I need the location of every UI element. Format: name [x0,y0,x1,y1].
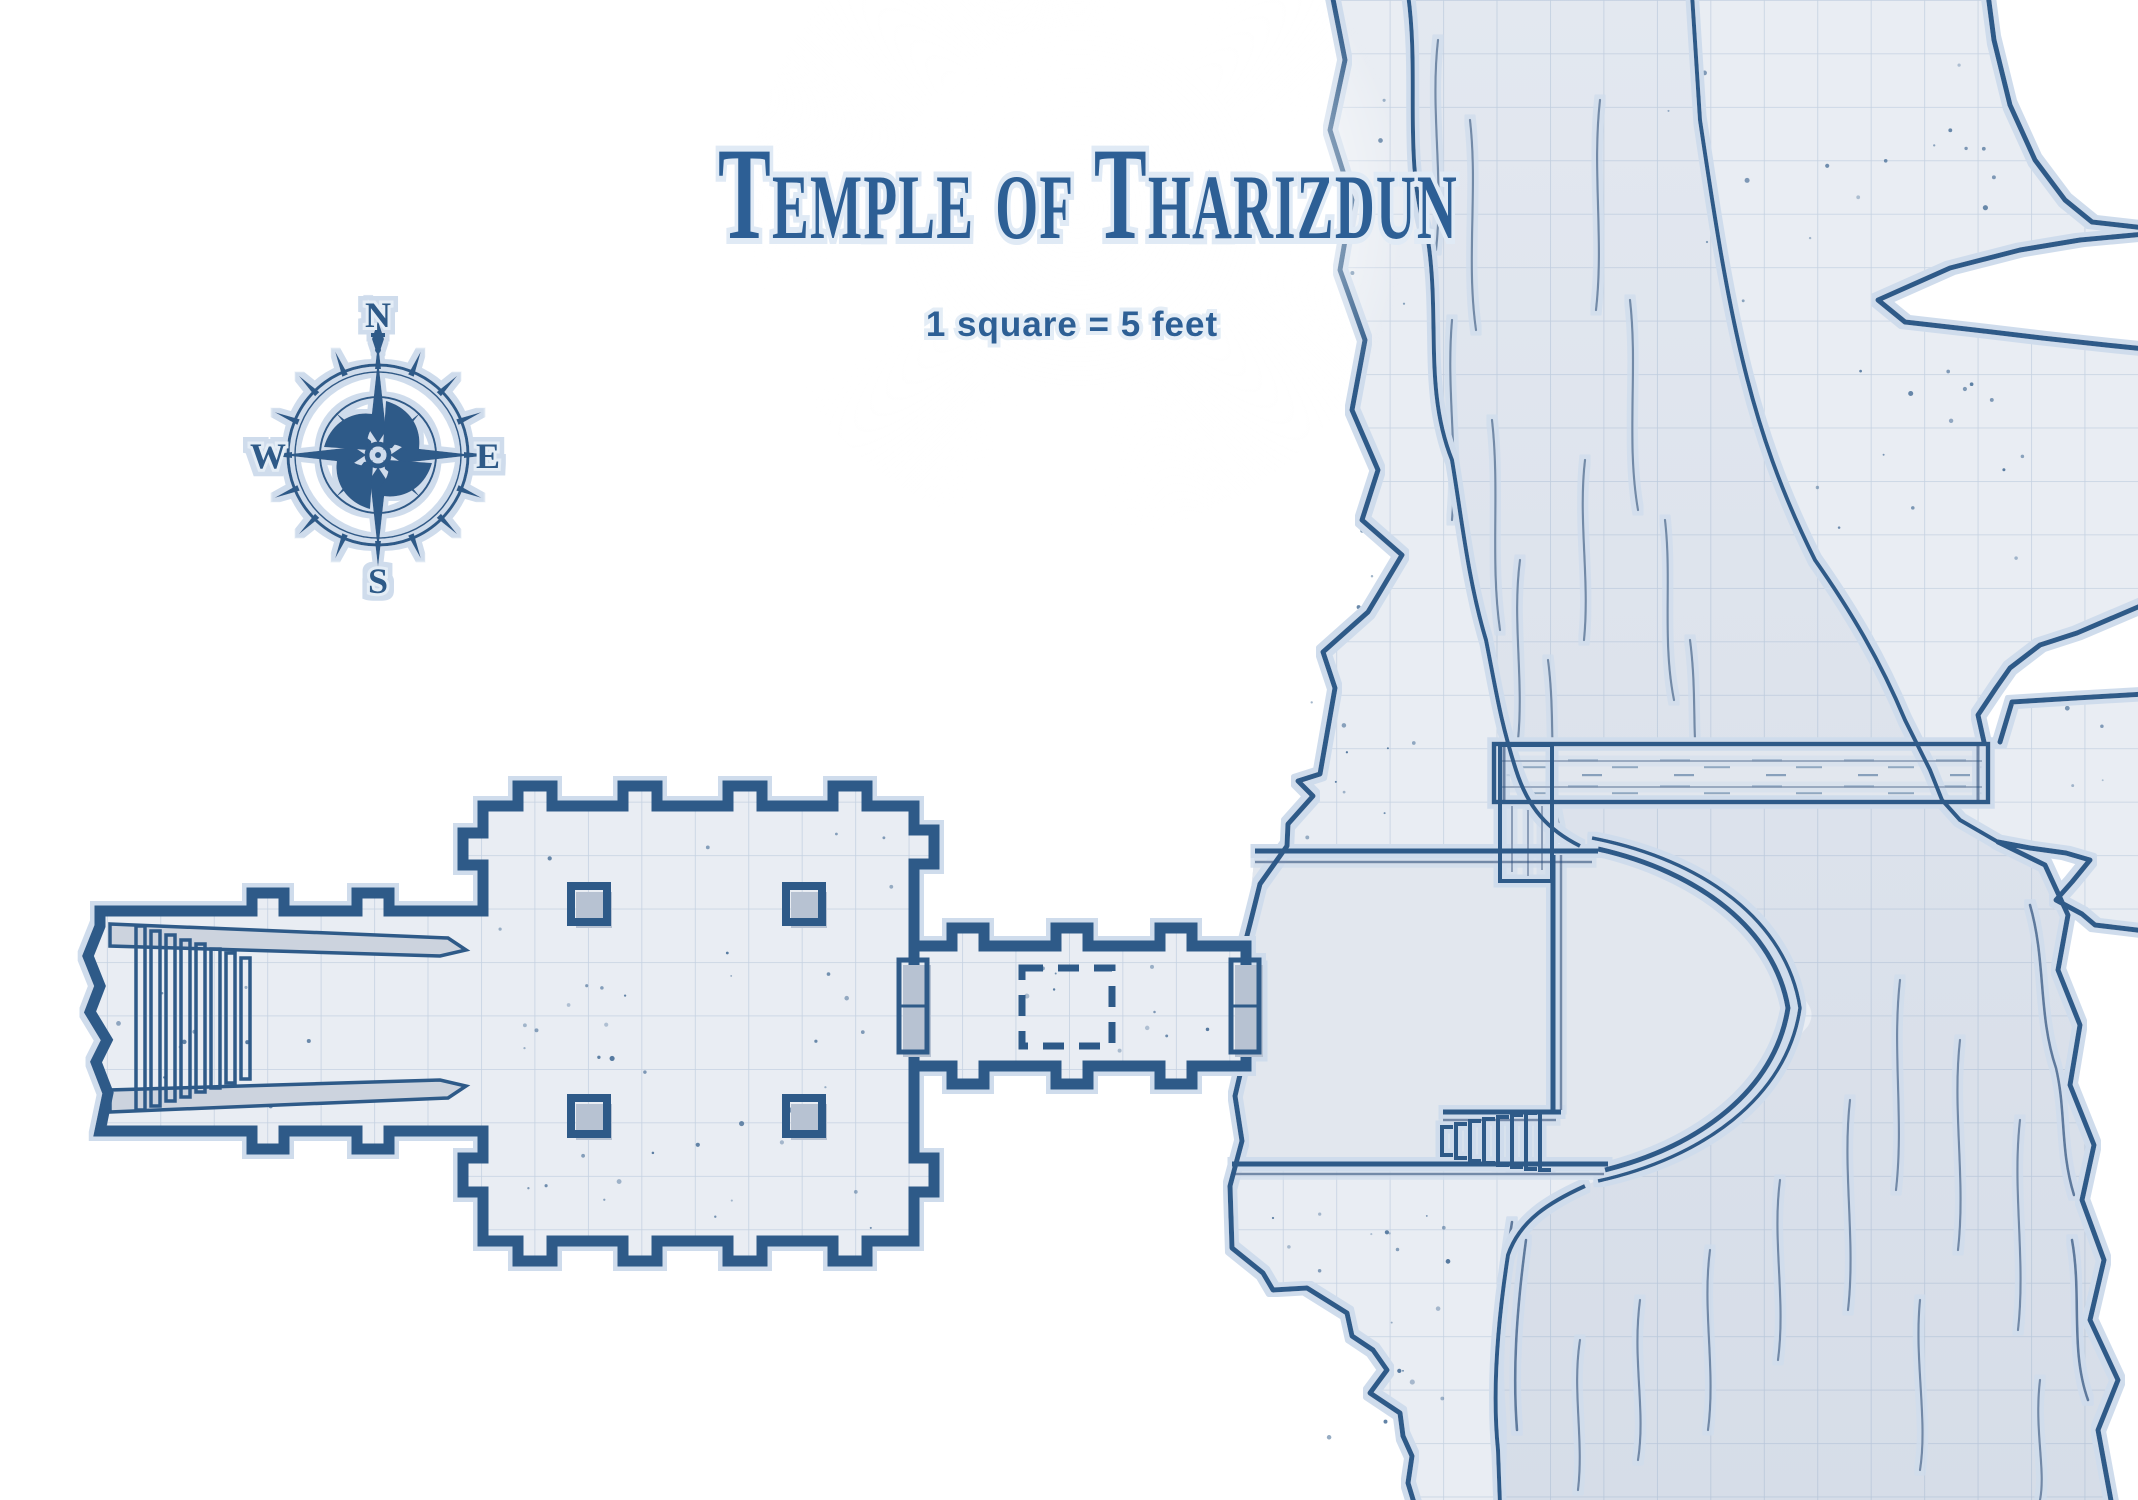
pillar [786,886,827,928]
pillar [786,1098,827,1140]
compass-north-label: N [365,295,391,335]
compass-east-label: E [476,436,500,476]
temple-floorplan [80,778,1263,1290]
compass-south-label: S [368,561,388,601]
double-door-east [1231,960,1263,1057]
double-door-west [899,960,931,1057]
map-canvas: N S E W Temple of Tharizdun 1 square = 5… [0,0,2138,1500]
map-title: Temple of Tharizdun [718,120,1458,267]
temple-grid [80,778,1260,1290]
compass-rose-icon: N S E W [250,295,500,601]
compass-west-label: W [250,436,286,476]
pillar [571,886,612,928]
title-glow [748,0,1408,538]
battle-map: N S E W Temple of Tharizdun 1 square = 5… [0,0,2138,1500]
pillar [571,1098,612,1140]
scale-note: 1 square = 5 feet [926,305,1218,344]
